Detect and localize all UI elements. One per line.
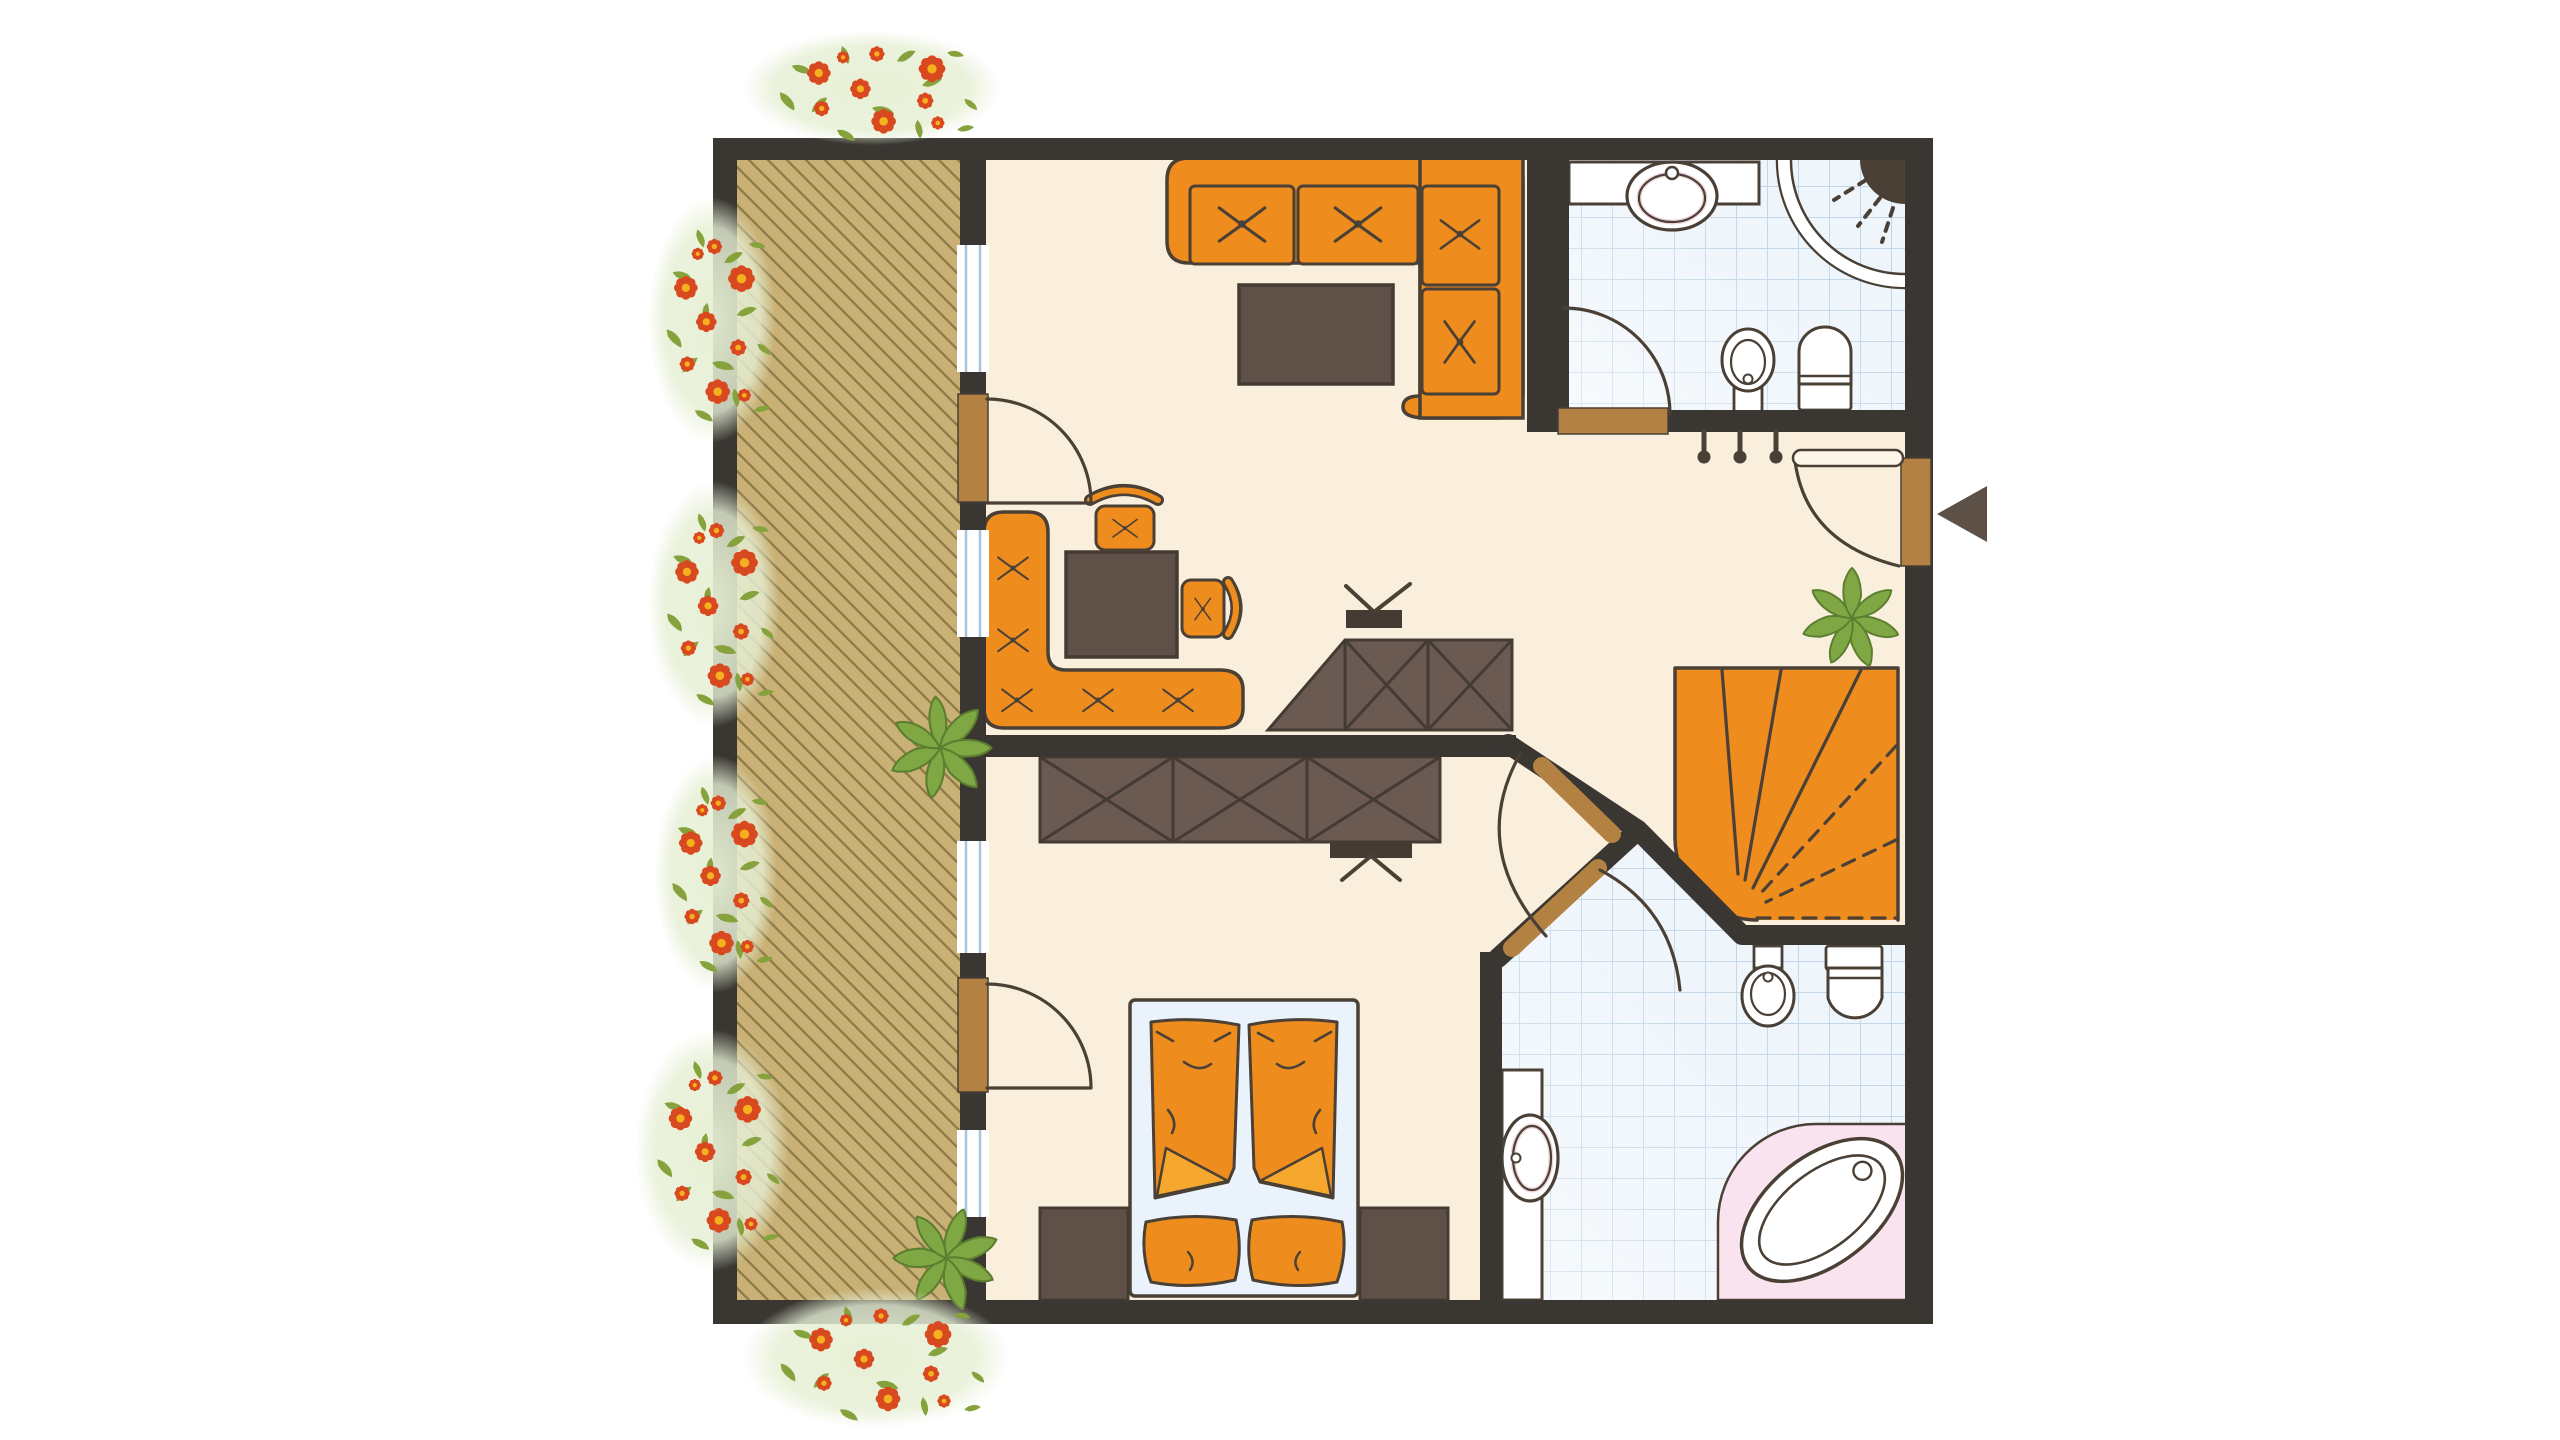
flower-icon xyxy=(696,312,717,333)
flower-icon xyxy=(711,795,726,810)
flower-icon xyxy=(741,940,754,953)
flower-icon xyxy=(733,892,749,908)
flower-cluster xyxy=(648,197,776,443)
flower-cluster xyxy=(742,31,1002,145)
flower-icon xyxy=(871,109,896,134)
window xyxy=(957,1130,989,1217)
flower-icon xyxy=(728,265,755,292)
pillow xyxy=(1144,1216,1239,1285)
flower-icon xyxy=(675,560,699,584)
flower-icon xyxy=(937,1394,950,1407)
flower-icon xyxy=(705,379,730,404)
flower-icon xyxy=(809,1328,833,1352)
flower-icon xyxy=(692,248,704,260)
nightstand-right xyxy=(1360,1208,1448,1300)
flower-icon xyxy=(669,1107,693,1131)
floor-plan-page xyxy=(0,0,2560,1440)
flower-icon xyxy=(707,239,722,254)
flower-icon xyxy=(698,596,719,617)
flower-icon xyxy=(854,1349,875,1370)
flower-icon xyxy=(709,523,724,538)
window xyxy=(957,245,989,372)
flower-icon xyxy=(707,1070,722,1085)
flower-icon xyxy=(869,46,884,61)
basin-drain xyxy=(1666,167,1678,179)
flower-icon xyxy=(850,79,871,100)
toilet-top xyxy=(1799,327,1851,410)
flower-icon xyxy=(837,51,849,63)
window xyxy=(957,530,989,637)
flower-cluster xyxy=(648,481,780,727)
flower-icon xyxy=(873,1308,888,1323)
flower-cluster xyxy=(742,1288,1010,1429)
flower-icon xyxy=(734,1096,761,1123)
flower-icon xyxy=(816,1375,831,1390)
flower-icon xyxy=(679,831,703,855)
entrance-door xyxy=(1901,458,1931,566)
flower-icon xyxy=(744,1217,757,1230)
nightstand-left xyxy=(1040,1208,1128,1300)
dining-table xyxy=(1066,552,1177,657)
basin-drain xyxy=(1512,1154,1521,1163)
bathroom-top-door xyxy=(1558,408,1668,434)
floor-plan-drawing xyxy=(0,0,2560,1440)
flower-icon xyxy=(919,55,946,82)
flower-icon xyxy=(684,909,699,924)
flower-icon xyxy=(681,640,696,655)
flower-icon xyxy=(708,663,733,688)
flower-icon xyxy=(735,1169,751,1185)
terrace-door-bedroom xyxy=(958,978,988,1092)
flower-icon xyxy=(807,61,831,85)
flower-icon xyxy=(695,1142,716,1163)
terrace-door-living xyxy=(958,394,988,502)
entrance-door-open-leaf xyxy=(1793,450,1903,466)
flower-icon xyxy=(696,804,708,816)
flower-icon xyxy=(731,549,758,576)
flower-icon xyxy=(674,276,698,300)
toilet-bottom xyxy=(1826,946,1882,1018)
wall-bathroom-top-left xyxy=(1527,158,1569,432)
flower-icon xyxy=(700,865,721,886)
flower-icon xyxy=(814,101,829,116)
wall-outer-right xyxy=(1905,138,1933,1324)
pillow xyxy=(1249,1216,1344,1285)
flower-icon xyxy=(923,1366,939,1382)
double-bed xyxy=(1130,1000,1358,1296)
staircase xyxy=(1675,668,1898,920)
flower-icon xyxy=(731,821,758,848)
flower-icon xyxy=(680,356,695,371)
flower-icon xyxy=(876,1387,901,1412)
flower-icon xyxy=(741,673,754,686)
flower-icon xyxy=(733,623,749,639)
wall-living-bedroom xyxy=(984,735,1516,757)
flower-icon xyxy=(925,1321,952,1348)
wall-bedroom-bathroom xyxy=(1480,952,1502,1304)
flower-icon xyxy=(709,931,734,956)
flower-cluster xyxy=(635,1029,789,1271)
flower-icon xyxy=(931,116,944,129)
flower-icon xyxy=(674,1186,689,1201)
coffee-table xyxy=(1239,285,1393,384)
flower-icon xyxy=(689,1079,701,1091)
flower-icon xyxy=(840,1314,852,1326)
flower-icon xyxy=(738,389,751,402)
window xyxy=(957,841,989,953)
flower-icon xyxy=(707,1208,732,1233)
flower-icon xyxy=(917,93,933,109)
flower-cluster xyxy=(654,755,777,993)
flower-icon xyxy=(693,532,705,544)
flower-icon xyxy=(730,339,746,355)
